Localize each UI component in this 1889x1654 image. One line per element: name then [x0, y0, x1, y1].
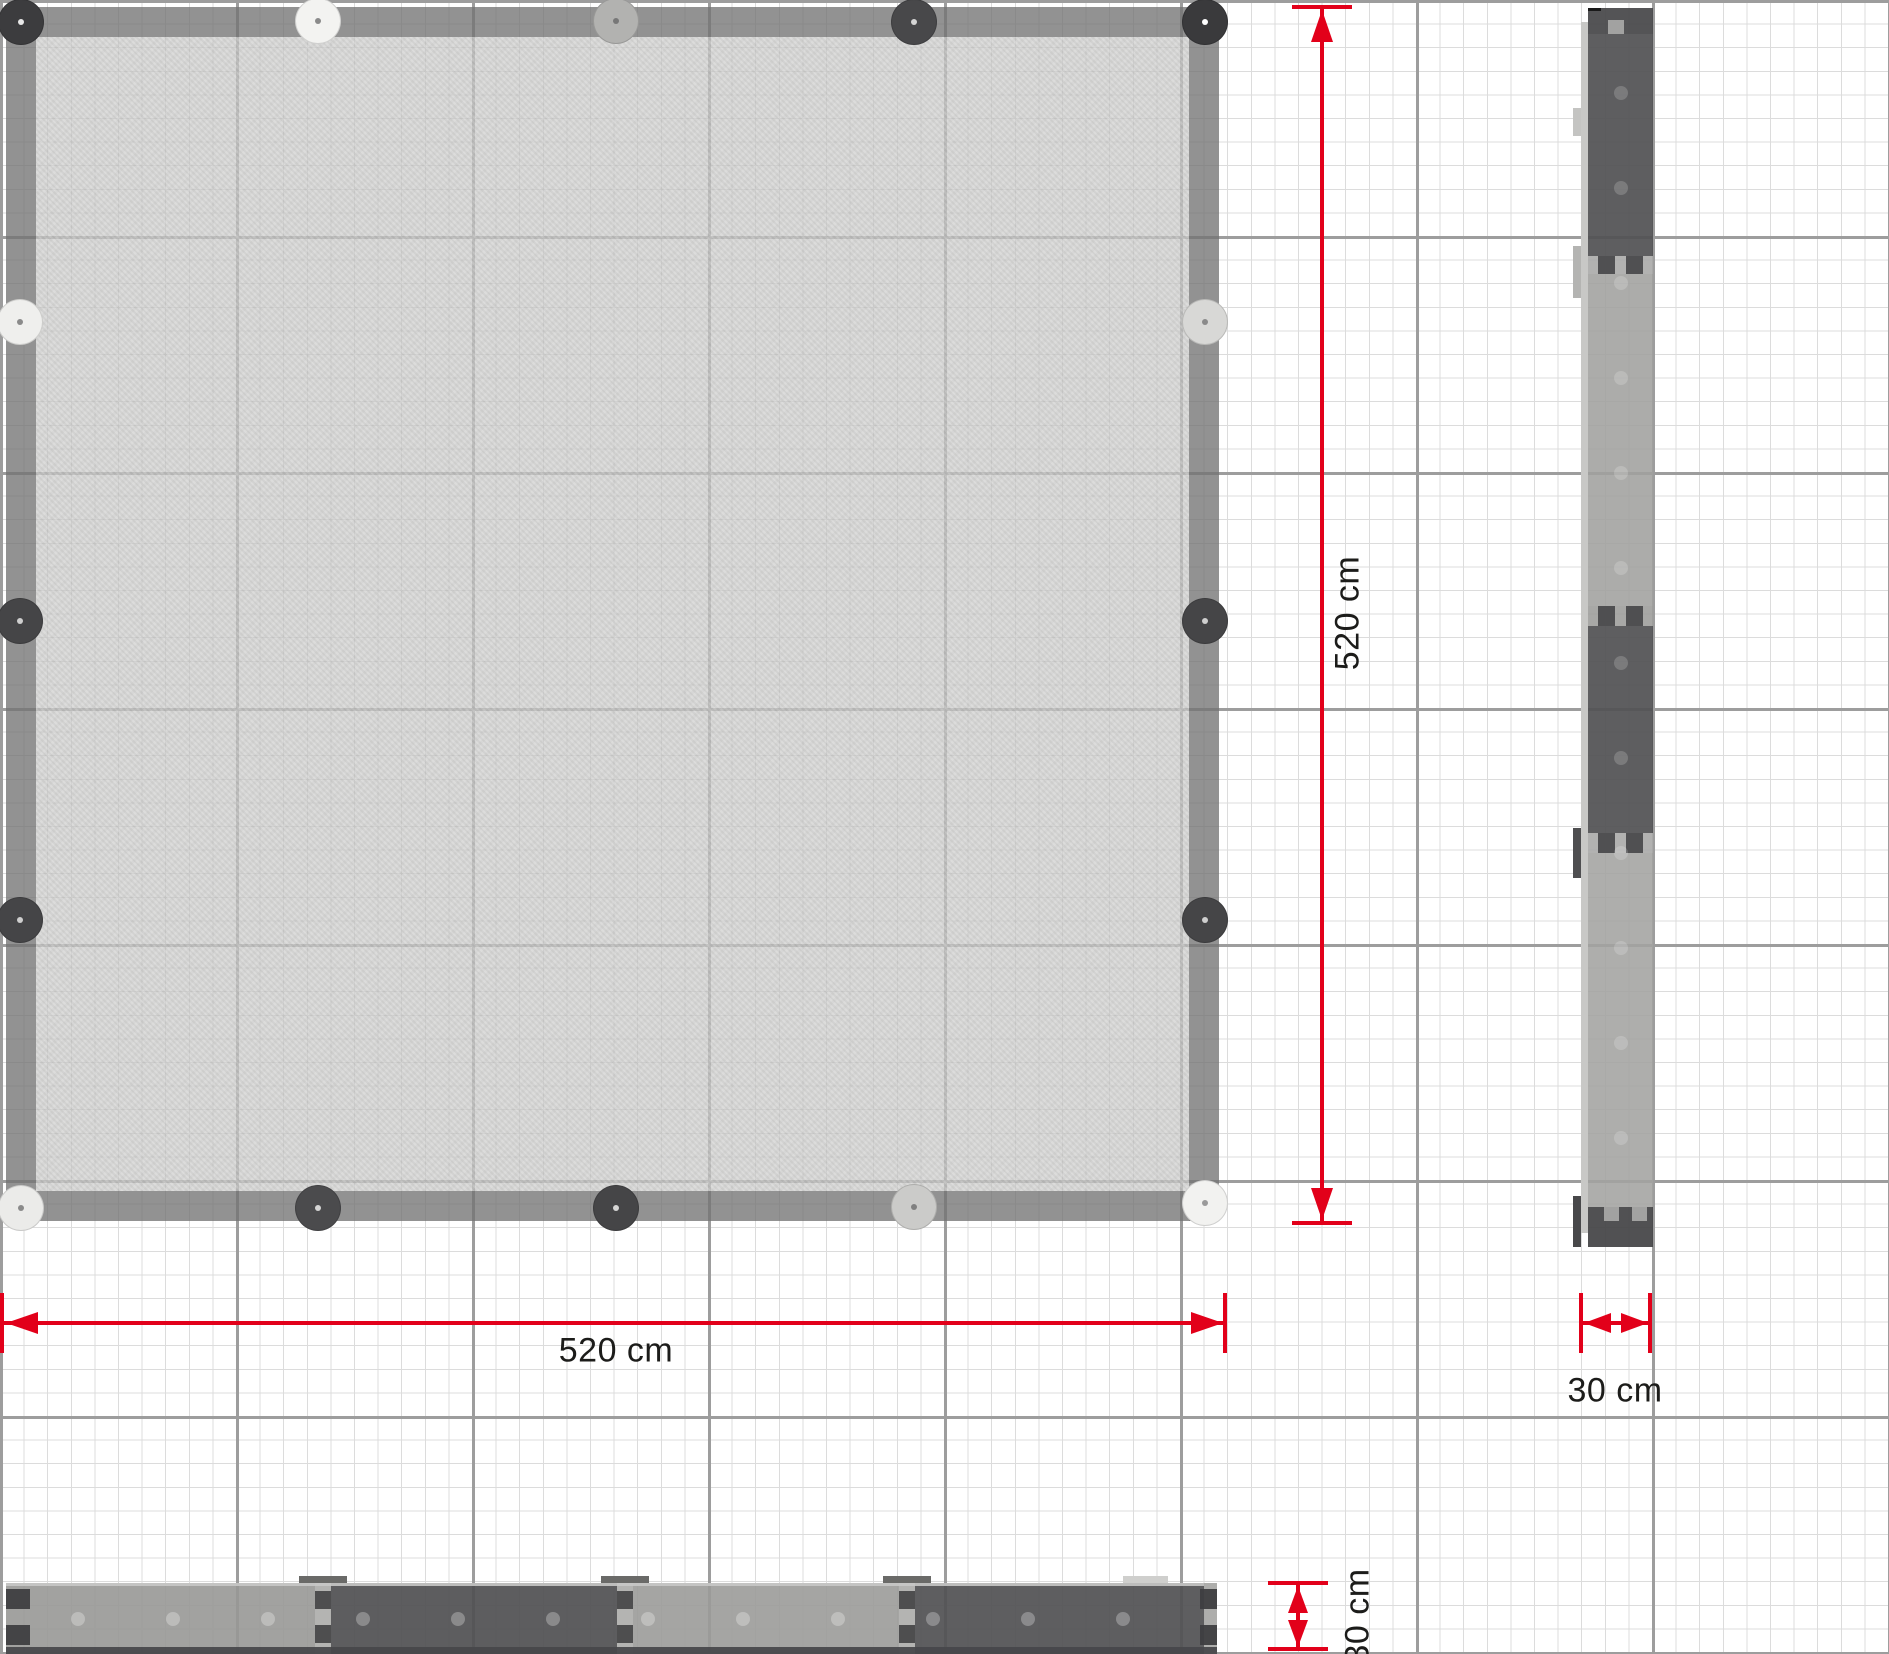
plan-width-dimension-tick-left [0, 1293, 4, 1353]
front-fastener-dot [926, 1612, 940, 1626]
side-board-segment [1588, 34, 1653, 256]
front-joint-tab [617, 1625, 633, 1643]
side-connector-tab [1573, 108, 1581, 136]
side-fastener-dot [1614, 1036, 1628, 1050]
post [593, 1185, 639, 1231]
side-fastener-dot [1614, 181, 1628, 195]
side-board-segment [1588, 853, 1653, 1207]
front-fastener-dot [71, 1612, 85, 1626]
front-fastener-dot [546, 1612, 560, 1626]
post-center-dot [17, 319, 23, 325]
front-joint-tab [617, 1591, 633, 1609]
front-bottom-band [6, 1647, 1217, 1654]
front-end-notch [1200, 1625, 1217, 1645]
side-joint-tab [1598, 256, 1615, 274]
post [1182, 598, 1228, 644]
plan-height-dimension-line [1320, 8, 1324, 1224]
side-fastener-dot [1614, 561, 1628, 575]
front-end-notch [6, 1625, 30, 1645]
side-cap-mark [1588, 8, 1601, 11]
side-width-dimension-tick-left [1579, 1293, 1583, 1353]
technical-drawing-canvas: 520 cm 520 cm 30 cm 30 cm [0, 0, 1889, 1654]
side-width-dimension-label: 30 cm [1567, 1372, 1662, 1411]
front-fastener-dot [1116, 1612, 1130, 1626]
side-connector-tab [1573, 1196, 1581, 1247]
post [0, 1185, 44, 1231]
post [891, 1184, 937, 1230]
front-fastener-dot [451, 1612, 465, 1626]
post-center-dot [315, 18, 321, 24]
post [1182, 897, 1228, 943]
front-joint-tab [899, 1625, 915, 1643]
side-outer-face [1581, 22, 1588, 1233]
front-elevation [6, 1583, 1217, 1654]
post-center-dot [613, 18, 619, 24]
side-fastener-dot [1614, 846, 1628, 860]
post-center-dot [911, 1204, 917, 1210]
front-end-notch [6, 1589, 30, 1609]
post-center-dot [18, 1205, 24, 1211]
front-connector-tab [299, 1576, 347, 1583]
plan-height-dimension-tick-bottom [1292, 1221, 1352, 1225]
front-top-highlight [6, 1583, 1204, 1586]
side-body [1588, 8, 1653, 1247]
post [1182, 1180, 1228, 1226]
plan-width-dimension-tick-right [1223, 1293, 1227, 1353]
plan-height-dimension-tick-top [1292, 5, 1352, 9]
plan-width-dimension-line [4, 1321, 1224, 1325]
post-center-dot [1202, 917, 1208, 923]
plan-view [6, 7, 1219, 1221]
front-board-segment [633, 1583, 899, 1654]
front-height-dimension-label: 30 cm [1339, 1568, 1378, 1654]
front-joint-tab [315, 1591, 331, 1609]
side-fastener-dot [1614, 656, 1628, 670]
arrow-right-icon [1621, 1313, 1648, 1333]
side-fastener-dot [1614, 371, 1628, 385]
post [1182, 0, 1228, 45]
arrow-down-icon [1288, 1620, 1308, 1647]
arrow-up-icon [1311, 10, 1333, 42]
front-fastener-dot [261, 1612, 275, 1626]
side-joint-tab [1626, 606, 1643, 626]
front-board-segment [915, 1583, 1204, 1654]
side-joint-tab [1626, 256, 1643, 274]
front-fastener-dot [831, 1612, 845, 1626]
side-connector-tab [1573, 828, 1581, 878]
post [891, 0, 937, 45]
side-cap-notch [1604, 1207, 1619, 1221]
side-fastener-dot [1614, 466, 1628, 480]
arrow-left-icon [1584, 1313, 1611, 1333]
post [295, 1185, 341, 1231]
front-fastener-dot [166, 1612, 180, 1626]
front-joint-tab [899, 1591, 915, 1609]
post-center-dot [613, 1205, 619, 1211]
post-center-dot [17, 618, 23, 624]
arrow-right-icon [1191, 1312, 1223, 1334]
side-elevation [1581, 8, 1653, 1247]
post-center-dot [1202, 1200, 1208, 1206]
post [295, 0, 341, 44]
post-center-dot [1202, 19, 1208, 25]
side-width-dimension-tick-right [1648, 1293, 1652, 1353]
side-fastener-dot [1614, 941, 1628, 955]
arrow-left-icon [6, 1312, 38, 1334]
plan-infill-area [36, 37, 1189, 1191]
side-fastener-dot [1614, 1131, 1628, 1145]
side-fastener-dot [1614, 751, 1628, 765]
post [593, 0, 639, 44]
front-height-dimension-tick-top [1268, 1581, 1328, 1585]
post-center-dot [18, 19, 24, 25]
front-fastener-dot [1021, 1612, 1035, 1626]
front-connector-tab [601, 1576, 649, 1583]
side-joint-tab [1626, 833, 1643, 853]
side-joint-tab [1598, 833, 1615, 853]
front-fastener-dot [356, 1612, 370, 1626]
post-center-dot [17, 917, 23, 923]
side-fastener-dot [1614, 86, 1628, 100]
side-board-segment [1588, 274, 1653, 606]
post-center-dot [1202, 319, 1208, 325]
front-joint-tab [315, 1625, 331, 1643]
plan-width-dimension-label: 520 cm [559, 1332, 674, 1371]
side-cap-notch [1608, 20, 1624, 34]
front-connector-tab [1123, 1576, 1168, 1583]
post-center-dot [315, 1205, 321, 1211]
front-end-notch [1200, 1589, 1217, 1609]
front-height-dimension-tick-bottom [1268, 1647, 1328, 1651]
front-fastener-dot [641, 1612, 655, 1626]
post-center-dot [911, 19, 917, 25]
front-connector-tab [883, 1576, 931, 1583]
post-center-dot [1202, 618, 1208, 624]
arrow-down-icon [1311, 1188, 1333, 1220]
side-connector-tab [1573, 246, 1581, 298]
front-fastener-dot [736, 1612, 750, 1626]
front-board-segment [331, 1583, 617, 1654]
side-joint-tab [1598, 606, 1615, 626]
plan-height-dimension-label: 520 cm [1329, 556, 1368, 671]
arrow-up-icon [1288, 1586, 1308, 1613]
post [1182, 299, 1228, 345]
side-cap-notch [1632, 1207, 1647, 1221]
side-fastener-dot [1614, 276, 1628, 290]
